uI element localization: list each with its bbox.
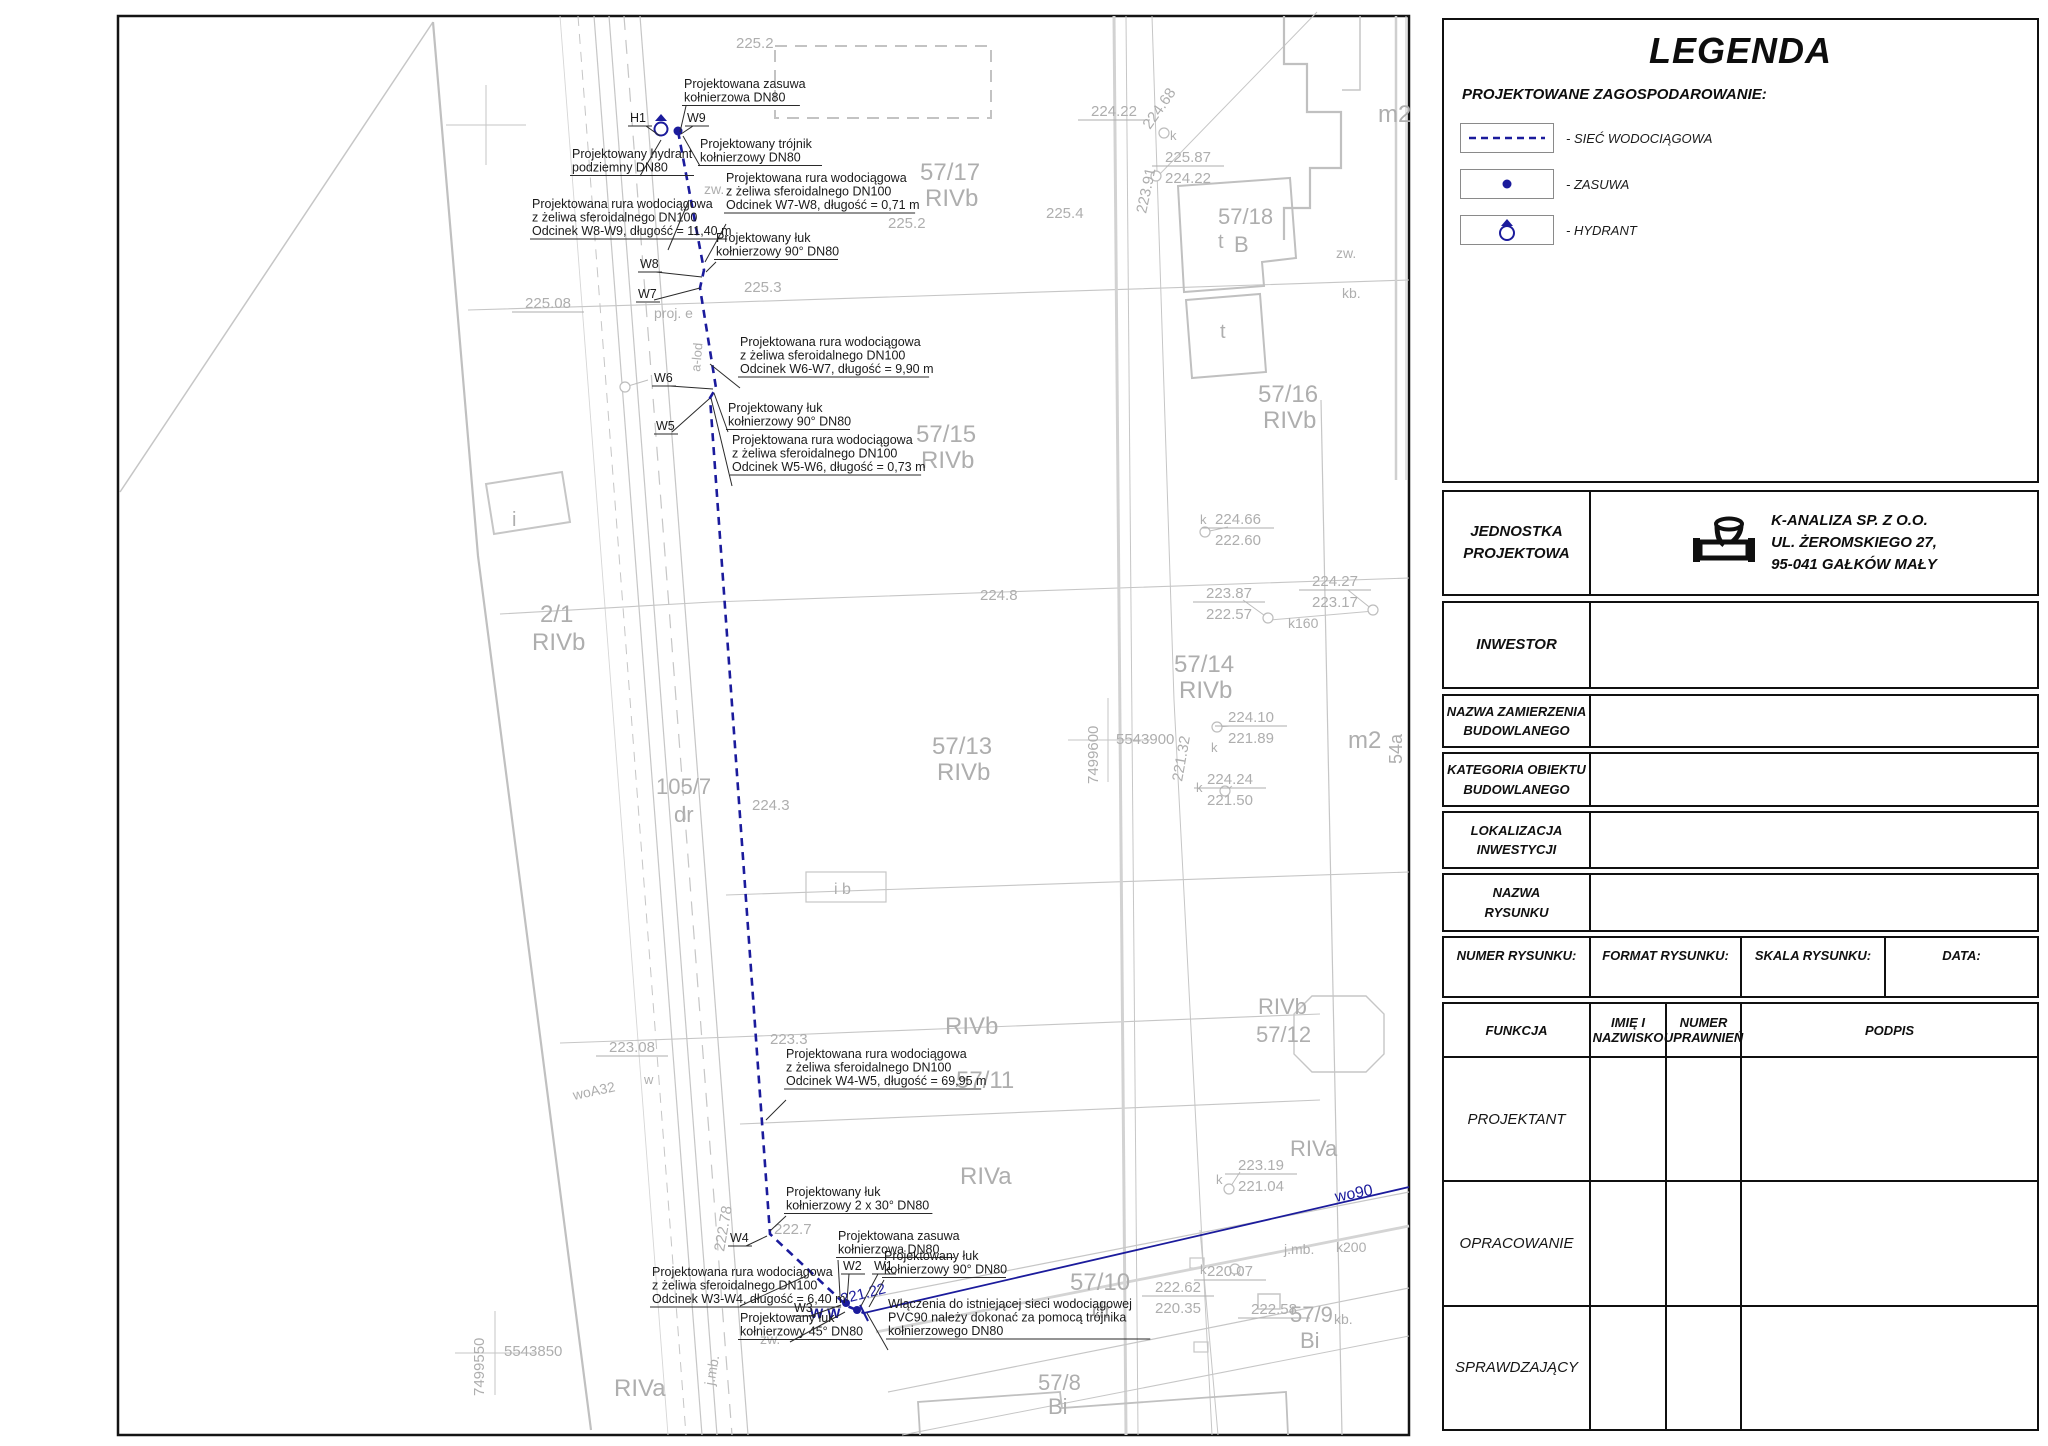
callout-leader-line (714, 393, 728, 432)
map-label: 225.2 (736, 35, 774, 52)
callout-text: W8 (640, 257, 659, 271)
inwestor-label: INWESTOR (1444, 603, 1591, 687)
callout-text: podziemny DN80 (572, 161, 668, 175)
kategoria-value-cell (1591, 754, 2037, 805)
callout-text: kołnierzowy DN80 (700, 151, 801, 165)
nazwa-zamierzenia-value-cell (1591, 696, 2037, 746)
callout-leader-line (680, 106, 686, 132)
designed-water-main-dashed (678, 131, 864, 1313)
elevation-label: 223.08 (609, 1039, 655, 1056)
map-label: k200 (1336, 1239, 1367, 1255)
opracowanie-name-cell (1591, 1182, 1667, 1304)
callout-leader-line (766, 1100, 786, 1120)
nazwa-zamierzenia-label: NAZWA ZAMIERZENIA BUDOWLANEGO (1444, 696, 1591, 746)
callout-text: kołnierzowy 90° DN80 (728, 415, 851, 429)
map-label: i b (834, 881, 851, 898)
callout-text: W9 (687, 111, 706, 125)
callout-text: Odcinek W6-W7, długość = 9,90 m (740, 362, 933, 376)
elevation-label: 225.08 (525, 295, 571, 312)
callout-text: Projektowany hydrant (572, 147, 693, 161)
legend-title: LEGENDA (1460, 30, 2021, 72)
map-label: 5543900 (1116, 731, 1174, 748)
lokalizacja-label: LOKALIZACJA INWESTYCJI (1444, 813, 1591, 867)
valve-w1 (853, 1306, 861, 1314)
map-label: 224.3 (752, 797, 790, 814)
format-rysunku-label: FORMAT RYSUNKU: (1591, 938, 1742, 996)
callout-leader-line (656, 272, 702, 277)
projektant-name-cell (1591, 1058, 1667, 1180)
map-label: k160 (1288, 615, 1319, 631)
callout-text: Projektowany łuk (786, 1185, 881, 1199)
elevation-label: 220.35 (1155, 1300, 1201, 1317)
callout-text: Odcinek W4-W5, długość = 69,95 m (786, 1074, 986, 1088)
callout-text: W5 (656, 419, 675, 433)
callout-text: Projektowana rura wodociągowa (652, 1265, 833, 1279)
sprawdzajacy-name-cell (1591, 1307, 1667, 1429)
signatures-header-row: FUNKCJA IMIĘ I NAZWISKO NUMER UPRAWNIEŃ … (1444, 1004, 2037, 1058)
map-label: k (1211, 740, 1218, 755)
legend-panel: LEGENDA PROJEKTOWANE ZAGOSPODAROWANIE: -… (1442, 18, 2039, 483)
callout-text: z żeliwa sferoidalnego DN100 (740, 349, 905, 363)
map-label: 222.7 (774, 1221, 812, 1238)
elevation-label: 221.04 (1238, 1178, 1284, 1195)
callout-text: W2 (843, 1259, 862, 1273)
callout-text: Projektowana rura wodociągowa (786, 1047, 967, 1061)
row-projektant: PROJEKTANT (1444, 1058, 2037, 1182)
opracowanie-label: OPRACOWANIE (1444, 1182, 1591, 1304)
sprawdzajacy-podpis-cell (1742, 1307, 2037, 1429)
opracowanie-uprawnienia-cell (1667, 1182, 1742, 1304)
elevation-label: 225.87 (1165, 149, 1211, 166)
map-label: t (1218, 231, 1224, 253)
map-label: k (1170, 128, 1177, 143)
legend-items: - SIEĆ WODOCIĄGOWA- ZASUWA- HYDRANT (1460, 107, 2021, 245)
legend-section-heading: PROJEKTOWANE ZAGOSPODAROWANIE: (1462, 86, 2021, 103)
titleblock-signatures: FUNKCJA IMIĘ I NAZWISKO NUMER UPRAWNIEŃ … (1442, 1002, 2039, 1431)
podpis-label: PODPIS (1742, 1004, 2037, 1056)
map-label: 57/18 (1218, 204, 1273, 229)
callout-text: z żeliwa sferoidalnego DN100 (726, 185, 891, 199)
callout-leader-line (672, 399, 709, 432)
map-label: 223.3 (770, 1031, 808, 1048)
map-label: 57/12 (1256, 1022, 1311, 1047)
map-label: a-lod (688, 342, 705, 372)
valve-dot-icon (1460, 169, 1554, 199)
map-label: 7499600 (1085, 726, 1102, 784)
map-annotations: 57/17RIVb57/15RIVb57/16RIVb57/14RIVb57/1… (471, 35, 1411, 1419)
map-label: 57/14 (1174, 651, 1234, 678)
callout-leader-line (681, 126, 693, 134)
map-label: 57/17 (920, 159, 980, 186)
sprawdzajacy-uprawnienia-cell (1667, 1307, 1742, 1429)
map-label: j.mb. (1283, 1241, 1314, 1257)
callout-text: kołnierzowy 90° DN80 (716, 245, 839, 259)
map-label: RIVb (945, 1013, 998, 1040)
kategoria-label: KATEGORIA OBIEKTU BUDOWLANEGO (1444, 754, 1591, 805)
hydrant-icon (1460, 215, 1554, 245)
numer-rysunku-label: NUMER RYSUNKU: (1444, 938, 1591, 996)
legend-item-label: - HYDRANT (1566, 223, 1637, 238)
lokalizacja-value-cell (1591, 813, 2037, 867)
map-label: RIVa (1290, 1136, 1338, 1161)
map-label: 57/8 (1038, 1370, 1081, 1395)
map-label: k (1200, 512, 1207, 527)
elevation-label: 224.22 (1091, 103, 1137, 120)
callout-text: kołnierzowy 45° DN80 (740, 1325, 863, 1339)
titleblock-row-metadata: NUMER RYSUNKU: FORMAT RYSUNKU: SKALA RYS… (1442, 936, 2039, 998)
legend-item: - SIEĆ WODOCIĄGOWA (1460, 123, 2021, 153)
callout-text: kołnierzowego DN80 (888, 1324, 1003, 1338)
map-label: 57/15 (916, 421, 976, 448)
map-label: m2 (1348, 727, 1381, 754)
map-label: w (643, 1072, 654, 1087)
titleblock-row-inwestor: INWESTOR (1442, 601, 2039, 689)
row-opracowanie: OPRACOWANIE (1444, 1182, 2037, 1306)
data-label: DATA: (1886, 938, 2037, 996)
skala-rysunku-label: SKALA RYSUNKU: (1742, 938, 1886, 996)
map-label: 105/7 (656, 774, 711, 799)
map-label: k (1216, 1172, 1223, 1187)
opracowanie-podpis-cell (1742, 1182, 2037, 1304)
map-label: B (1234, 232, 1249, 257)
company-address: K-ANALIZA SP. Z O.O. UL. ŻEROMSKIEGO 27,… (1771, 510, 1937, 575)
map-label: RIVb (1263, 407, 1316, 434)
callout-text: Projektowana rura wodociągowa (726, 171, 907, 185)
callout-text: z żeliwa sferoidalnego DN100 (652, 1279, 817, 1293)
drawing-sheet: 57/17RIVb57/15RIVb57/16RIVb57/14RIVb57/1… (0, 0, 2048, 1446)
company-logo-valve-icon (1691, 516, 1757, 570)
map-label: proj. e (654, 305, 693, 321)
map-label: 225.4 (1046, 205, 1084, 222)
map-label: kb. (1334, 1311, 1353, 1327)
map-label: wo90 (1333, 1182, 1375, 1206)
callout-text: Projektowana rura wodociągowa (740, 335, 921, 349)
titleblock-row-nazwa-zamierzenia: NAZWA ZAMIERZENIA BUDOWLANEGO (1442, 694, 2039, 748)
callout-text: PVC90 należy dokonać za pomocą trójnika (888, 1311, 1126, 1325)
elevation-label: 224.66 (1215, 511, 1261, 528)
inwestor-value-cell (1591, 603, 2037, 687)
map-label: 224.8 (980, 587, 1018, 604)
map-label: woA32 (570, 1078, 616, 1103)
map-label: RIVb (921, 447, 974, 474)
callout-text: kołnierzowa DN80 (684, 91, 785, 105)
legend-item-label: - SIEĆ WODOCIĄGOWA (1566, 131, 1712, 146)
elevation-label: 224.22 (1165, 170, 1211, 187)
callout-text: Projektowana zasuwa (838, 1229, 960, 1243)
projektant-uprawnienia-cell (1667, 1058, 1742, 1180)
imie-nazwisko-label: IMIĘ I NAZWISKO (1591, 1004, 1667, 1056)
row-sprawdzajacy: SPRAWDZAJĄCY (1444, 1307, 2037, 1429)
titleblock-row-lokalizacja: LOKALIZACJA INWESTYCJI (1442, 811, 2039, 869)
callout-text: Odcinek W3-W4, długość = 6,40 m (652, 1292, 845, 1306)
callout-text: Włączenia do istniejącej sieci wodociągo… (888, 1297, 1132, 1311)
callout-text: Odcinek W5-W6, długość = 0,73 m (732, 460, 925, 474)
map-label: RIVa (960, 1163, 1012, 1190)
callout-text: Odcinek W8-W9, długość = 11,40 m (532, 224, 732, 238)
legend-item-label: - ZASUWA (1566, 177, 1629, 192)
elevation-label: 224.10 (1228, 709, 1274, 726)
nazwa-rysunku-value-cell (1591, 875, 2037, 930)
map-label: dr (674, 802, 694, 827)
map-label: j.mb. (701, 1354, 722, 1388)
callout-leader-line (746, 1236, 767, 1246)
callout-text: H1 (630, 111, 646, 125)
numer-uprawnien-label: NUMER UPRAWNIEŃ (1667, 1004, 1742, 1056)
sprawdzajacy-label: SPRAWDZAJĄCY (1444, 1307, 1591, 1429)
map-label: 57/16 (1258, 381, 1318, 408)
callout-text: Projektowany trójnik (700, 137, 813, 151)
map-label: 223.91 (1133, 166, 1159, 214)
funkcja-label: FUNKCJA (1444, 1004, 1591, 1056)
elevation-label: 222.60 (1215, 532, 1261, 549)
dashed-line-icon (1460, 123, 1554, 153)
callout-text: kołnierzowy 90° DN80 (884, 1263, 1007, 1277)
callout-text: Projektowany łuk (740, 1311, 835, 1325)
map-label: zw. (1336, 245, 1356, 261)
map-label: 57/10 (1070, 1269, 1130, 1296)
elevation-label: 220.07 (1207, 1263, 1253, 1280)
map-label: 225.3 (744, 279, 782, 296)
callout-leader-line (706, 262, 716, 272)
elevation-label: 222.57 (1206, 606, 1252, 623)
map-label: Bi (1048, 1394, 1068, 1419)
map-label: 54a (1386, 733, 1406, 764)
elevation-label: 223.17 (1312, 594, 1358, 611)
callout-text: z żeliwa sferoidalnego DN100 (732, 447, 897, 461)
callout-text: Projektowany łuk (884, 1249, 979, 1263)
map-label: RIVb (532, 629, 585, 656)
callout-text: z żeliwa sferoidalnego DN100 (786, 1061, 951, 1075)
callout-leader-line (670, 386, 713, 389)
callout-text: kołnierzowy 2 x 30° DN80 (786, 1199, 929, 1213)
callout-text: Projektowana zasuwa (684, 77, 806, 91)
titleblock-row-nazwa-rysunku: NAZWA RYSUNKU (1442, 873, 2039, 932)
callout-text: Projektowana rura wodociągowa (732, 433, 913, 447)
map-label: RIVb (1258, 994, 1307, 1019)
elevation-label: 224.24 (1207, 771, 1253, 788)
map-label: 225.2 (888, 215, 926, 232)
map-label: zw. (704, 181, 724, 197)
projektant-podpis-cell (1742, 1058, 2037, 1180)
titleblock-row-jednostka: JEDNOSTKA PROJEKTOWA K-ANALIZA SP. Z O.O… (1442, 490, 2039, 596)
map-label: kb. (1342, 285, 1361, 301)
map-label: t (1220, 321, 1226, 343)
legend-item: - HYDRANT (1460, 215, 2021, 245)
callout-leader-line (646, 126, 660, 136)
elevation-label: 221.89 (1228, 730, 1274, 747)
nazwa-rysunku-label: NAZWA RYSUNKU (1444, 875, 1591, 930)
projektant-label: PROJEKTANT (1444, 1058, 1591, 1180)
map-label: RIVb (937, 759, 990, 786)
map-label: RIVb (1179, 677, 1232, 704)
callout-text: W4 (730, 1231, 749, 1245)
callout-text: z żeliwa sferoidalnego DN100 (532, 211, 697, 225)
callout-text: Projektowany łuk (728, 401, 823, 415)
map-label: m2 (1378, 101, 1411, 128)
callout-text: Odcinek W7-W8, długość = 0,71 m (726, 198, 919, 212)
titleblock-row-kategoria: KATEGORIA OBIEKTU BUDOWLANEGO (1442, 752, 2039, 807)
callout-text: W6 (654, 371, 673, 385)
map-label: Bi (1300, 1328, 1320, 1353)
jednostka-label: JEDNOSTKA PROJEKTOWA (1444, 492, 1591, 594)
map-label: 224.68 (1139, 85, 1179, 132)
map-label: 7499550 (471, 1338, 488, 1396)
elevation-label: 223.87 (1206, 585, 1252, 602)
company-cell: K-ANALIZA SP. Z O.O. UL. ŻEROMSKIEGO 27,… (1591, 492, 2037, 594)
map-label: 5543850 (504, 1343, 562, 1360)
map-label: i (512, 509, 516, 531)
map-label: RIVb (925, 185, 978, 212)
callout-text: Projektowany łuk (716, 231, 811, 245)
elevation-label: 222.58 (1251, 1301, 1297, 1318)
elevation-label: 222.62 (1155, 1279, 1201, 1296)
elevation-label: 221.50 (1207, 792, 1253, 809)
elevation-label: 224.27 (1312, 573, 1358, 590)
map-label: k (1200, 1262, 1207, 1277)
map-label: 57/13 (932, 733, 992, 760)
map-label: 2/1 (540, 601, 573, 628)
callout-text: W7 (638, 287, 657, 301)
elevation-label: 223.19 (1238, 1157, 1284, 1174)
hydrant-h1 (655, 114, 668, 136)
legend-item: - ZASUWA (1460, 169, 2021, 199)
map-label: RIVa (614, 1375, 666, 1402)
map-label: 221.22 (839, 1280, 888, 1308)
